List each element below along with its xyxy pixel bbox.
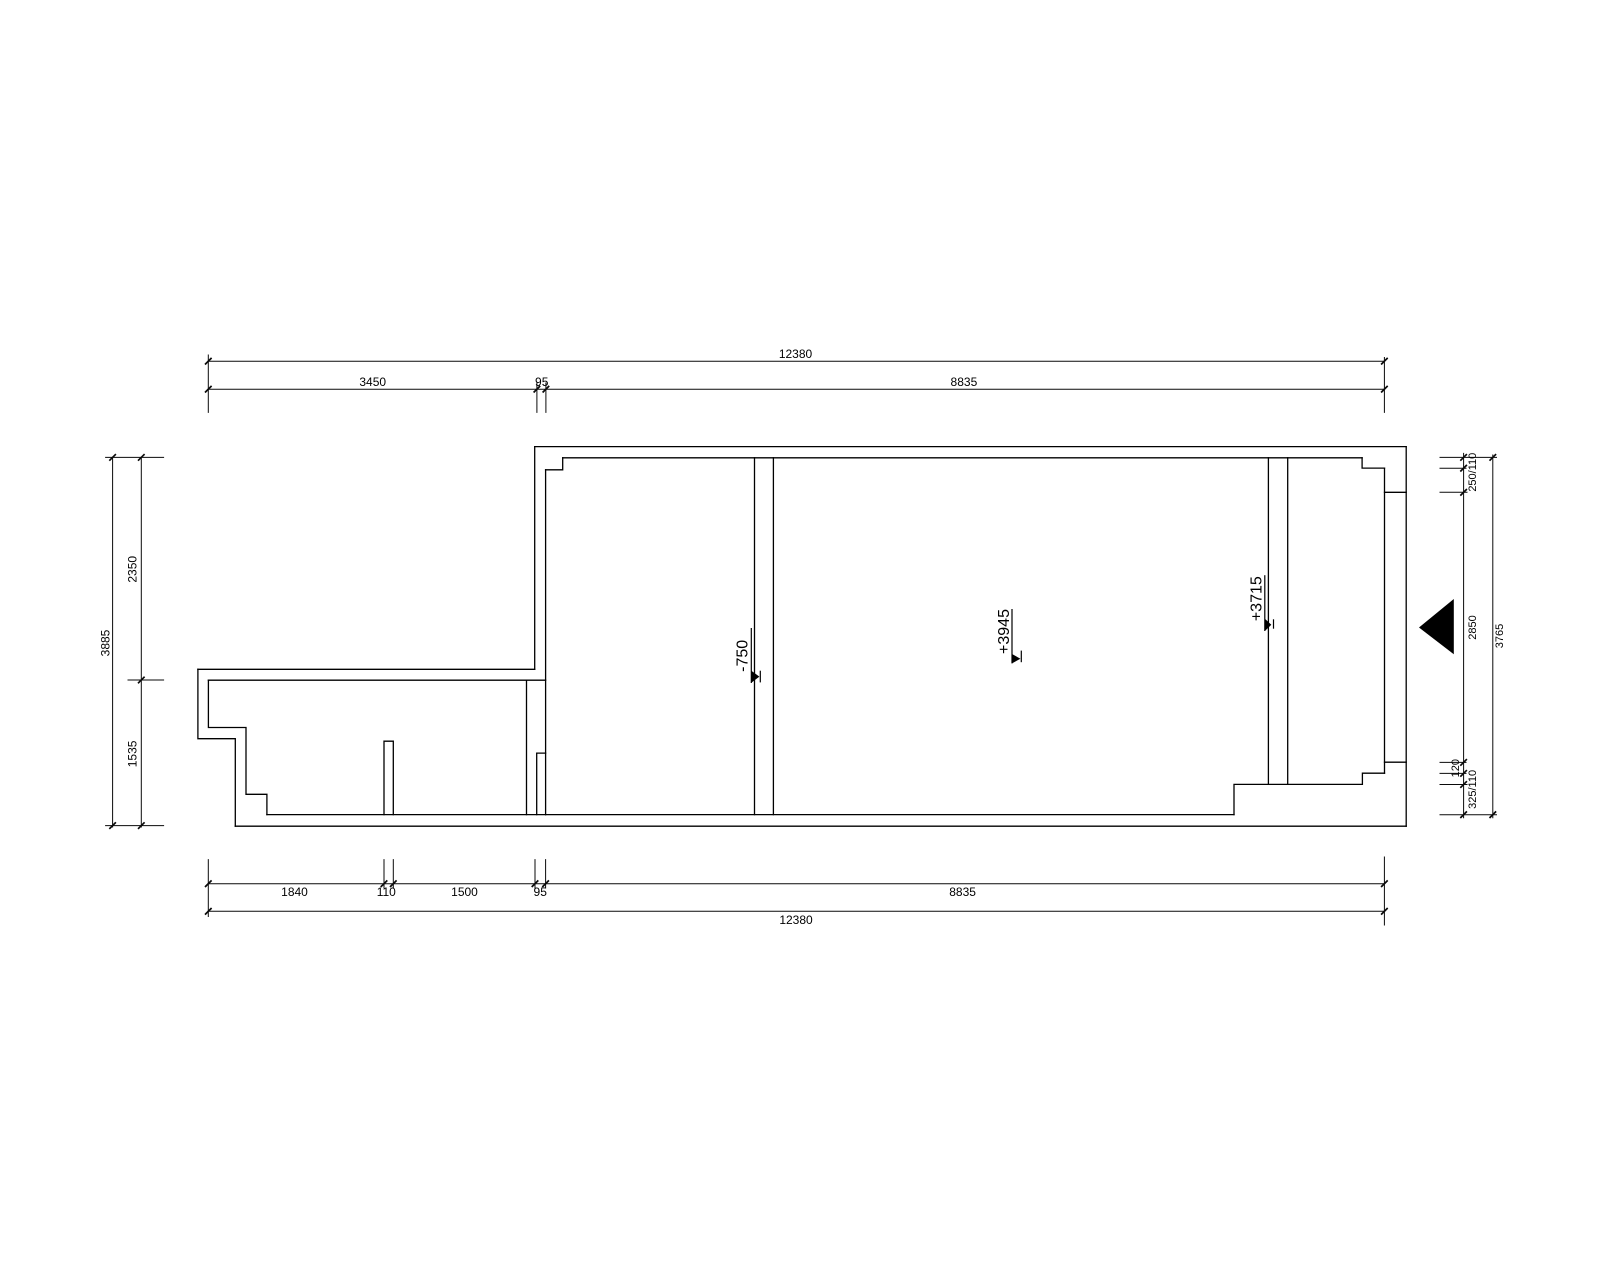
svg-text:3765: 3765 — [1494, 624, 1506, 648]
svg-text:3885: 3885 — [98, 629, 112, 656]
svg-text:3450: 3450 — [359, 375, 386, 389]
svg-text:1535: 1535 — [126, 740, 140, 767]
svg-text:1840: 1840 — [281, 885, 308, 899]
svg-text:8835: 8835 — [949, 885, 976, 899]
svg-text:95: 95 — [534, 885, 548, 899]
svg-text:12380: 12380 — [779, 913, 813, 927]
svg-text:8835: 8835 — [951, 375, 978, 389]
svg-text:325/110: 325/110 — [1467, 770, 1479, 809]
svg-text:250/110: 250/110 — [1467, 453, 1479, 492]
svg-text:12380: 12380 — [779, 347, 813, 361]
svg-text:2350: 2350 — [126, 556, 140, 583]
svg-text:-750: -750 — [735, 640, 752, 672]
svg-text:120: 120 — [1450, 759, 1462, 777]
svg-text:110: 110 — [377, 885, 396, 899]
svg-text:2850: 2850 — [1467, 615, 1479, 639]
svg-text:95: 95 — [535, 375, 549, 389]
svg-text:+3945: +3945 — [996, 609, 1013, 654]
svg-text:+3715: +3715 — [1248, 576, 1265, 621]
svg-text:1500: 1500 — [451, 885, 478, 899]
